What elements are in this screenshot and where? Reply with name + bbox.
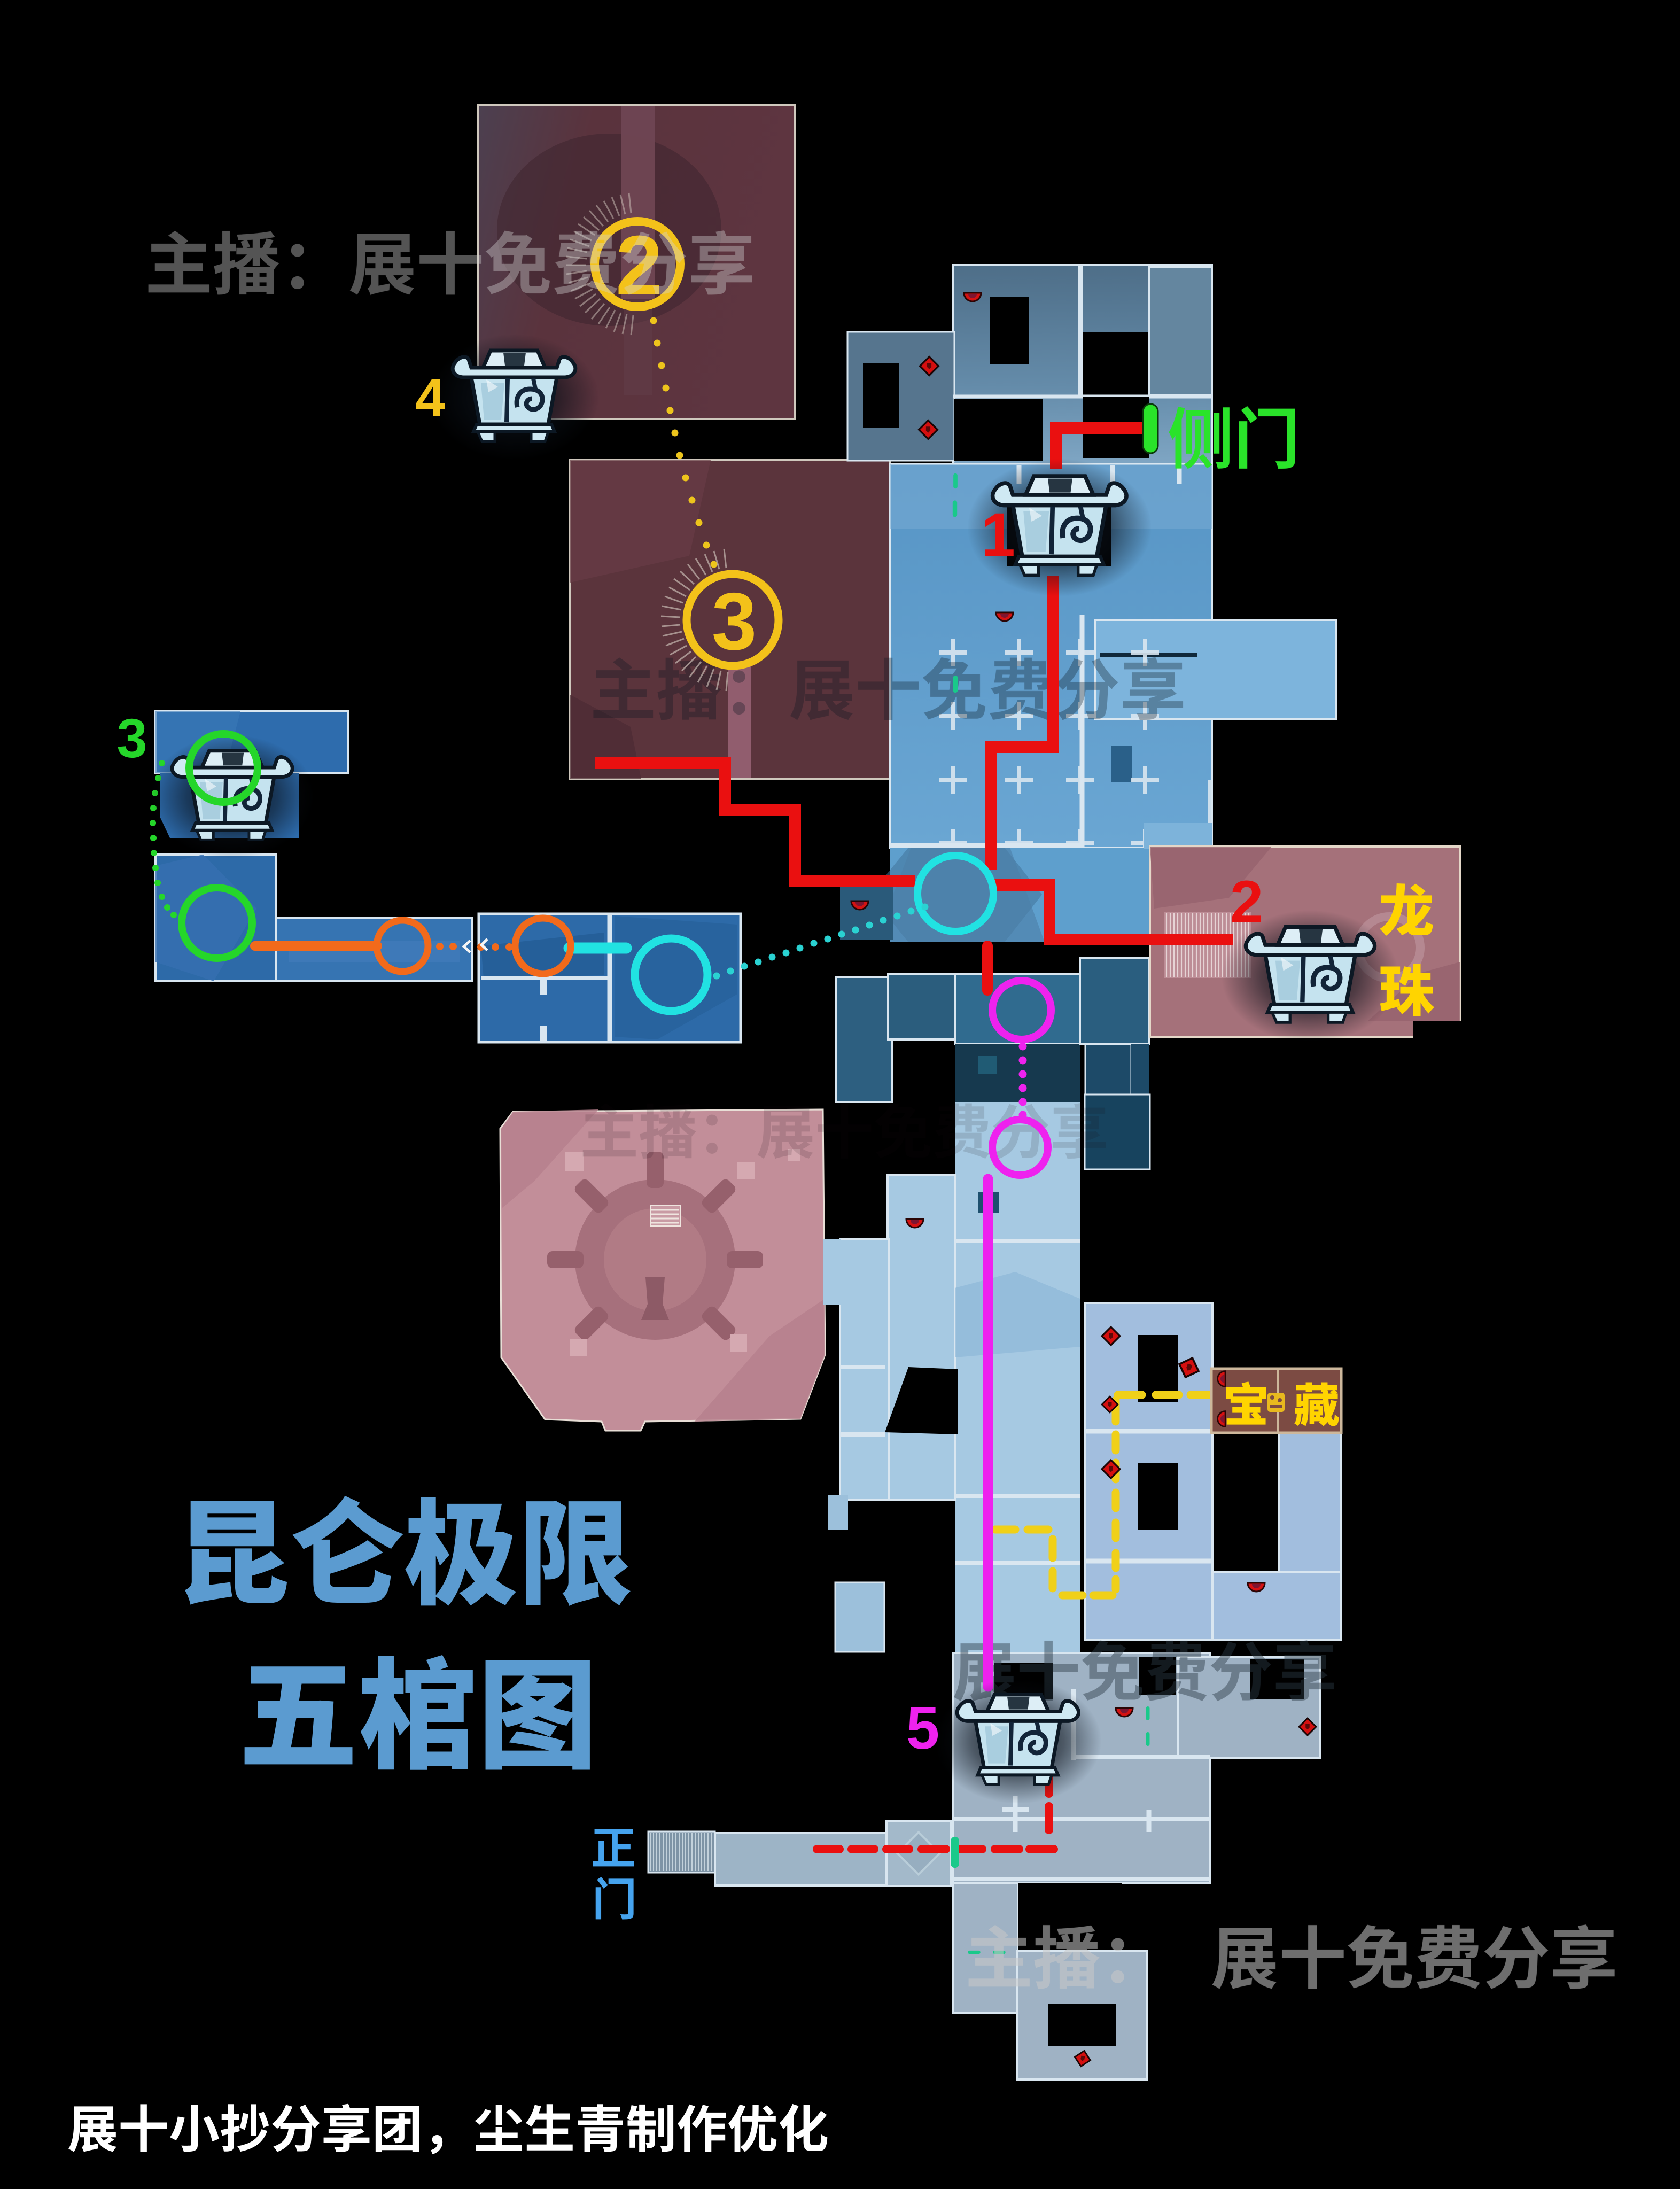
svg-text:4: 4 [415,368,445,428]
svg-text:2: 2 [1230,868,1263,935]
svg-text:3: 3 [712,576,757,667]
svg-text:1: 1 [981,501,1015,569]
svg-text:3: 3 [116,708,147,769]
svg-text:2: 2 [616,219,663,313]
svg-text:5: 5 [906,1695,939,1761]
